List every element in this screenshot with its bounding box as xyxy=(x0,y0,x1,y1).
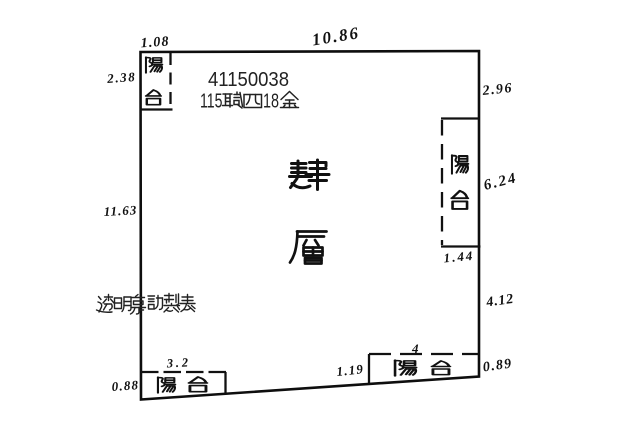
svg-text:10.86: 10.86 xyxy=(311,23,362,49)
svg-text:0.89: 0.89 xyxy=(482,356,514,375)
svg-text:2.96: 2.96 xyxy=(481,81,514,99)
svg-text:2.38: 2.38 xyxy=(106,69,137,86)
svg-text:4.12: 4.12 xyxy=(484,292,515,311)
svg-text:6.24: 6.24 xyxy=(482,170,519,194)
svg-text:1.19: 1.19 xyxy=(336,361,365,379)
svg-text:0.88: 0.88 xyxy=(111,377,140,394)
svg-text:4: 4 xyxy=(411,341,419,356)
svg-text:1.08: 1.08 xyxy=(140,34,170,51)
svg-text:115: 115 xyxy=(200,91,223,113)
svg-text:18: 18 xyxy=(263,91,279,113)
svg-text:1.44: 1.44 xyxy=(443,248,475,266)
svg-text:41150038: 41150038 xyxy=(208,69,289,91)
svg-text:3.2: 3.2 xyxy=(165,355,191,370)
svg-text:11.63: 11.63 xyxy=(103,202,137,219)
